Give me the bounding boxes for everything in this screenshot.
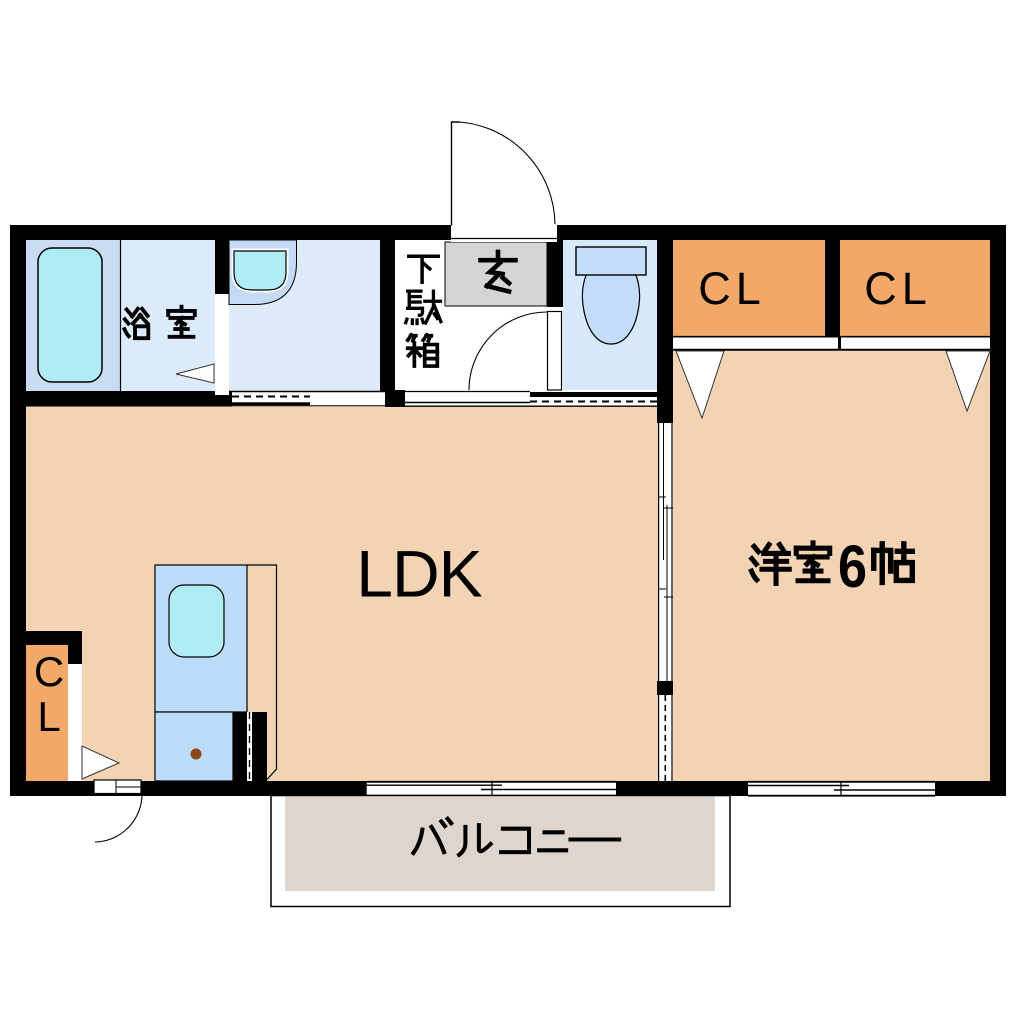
svg-text:CL: CL — [698, 263, 766, 314]
svg-text:CL: CL — [864, 263, 932, 314]
svg-text:L: L — [37, 693, 60, 740]
svg-text:C: C — [34, 648, 64, 695]
svg-text:LDK: LDK — [356, 537, 482, 611]
svg-text:6: 6 — [838, 533, 867, 600]
